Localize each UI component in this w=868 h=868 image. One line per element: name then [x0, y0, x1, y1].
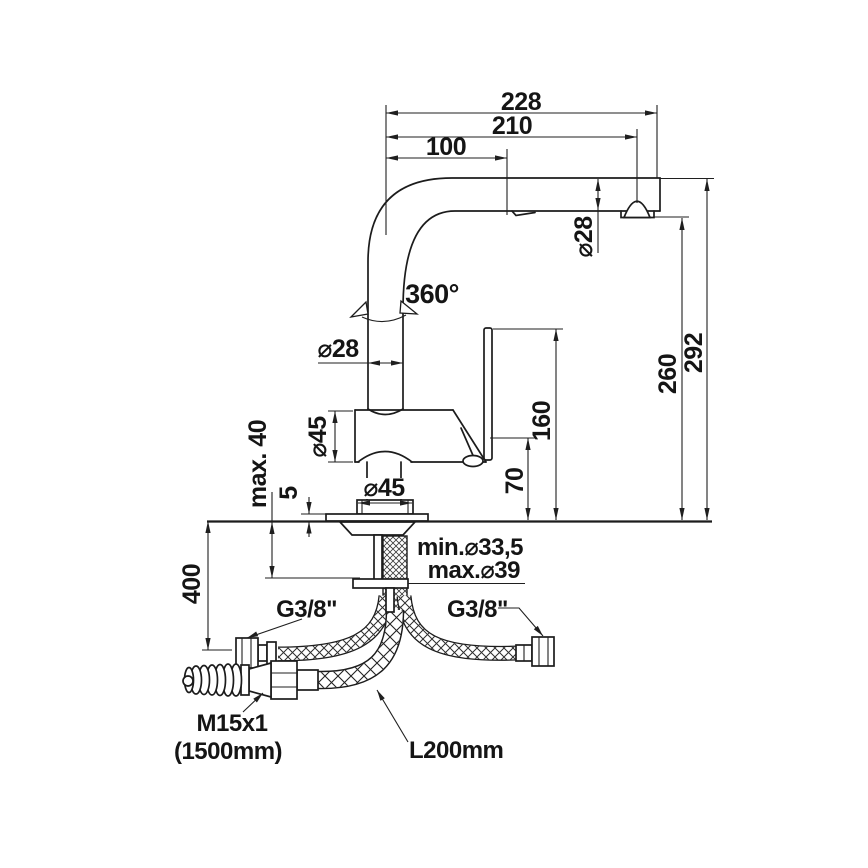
- m15-hex-nut: [271, 661, 297, 699]
- dim-70: 70: [501, 468, 529, 495]
- dim-5: 5: [275, 486, 303, 500]
- cartridge-slant-edge: [453, 410, 486, 462]
- mounting-stud: [374, 535, 382, 580]
- mounting-plate: [353, 579, 408, 588]
- faucet-outline: [326, 178, 660, 521]
- column-body-fillet: [358, 452, 412, 463]
- dim-160: 160: [528, 401, 556, 441]
- dim-400: 400: [178, 564, 206, 604]
- faucet-dimension-drawing: 228 210 100 ⌀28 360° ⌀28 292 260 160 70 …: [0, 0, 868, 868]
- gasket-cone: [340, 522, 415, 535]
- m15-cone: [249, 663, 271, 697]
- handle-lever: [484, 328, 492, 460]
- spring-guide: [183, 664, 242, 696]
- label-m15: M15x1: [197, 710, 268, 737]
- label-g38-left: G3/8": [276, 596, 337, 623]
- escutcheon-plate: [326, 514, 428, 521]
- stud-lower: [386, 588, 394, 612]
- aerator-dome: [624, 201, 650, 217]
- hose-crimp: [297, 670, 318, 690]
- dim-max40: max. 40: [244, 420, 272, 508]
- label-l200mm: L200mm: [409, 737, 503, 764]
- dim-260: 260: [654, 354, 682, 394]
- dim-max-hole: max.⌀39: [428, 557, 521, 584]
- dim-210: 210: [492, 112, 532, 140]
- right-g38-fitting: [516, 637, 554, 666]
- dimensions: 228 210 100 ⌀28 360° ⌀28 292 260 160 70 …: [178, 88, 714, 650]
- dim-phi28-riser: ⌀28: [317, 335, 359, 363]
- dim-100: 100: [426, 133, 466, 161]
- label-1500mm: (1500mm): [174, 738, 282, 765]
- dim-phi45-base: ⌀45: [363, 474, 405, 502]
- spout-inner-contour: [403, 211, 660, 409]
- technical-drawing-page: 228 210 100 ⌀28 360° ⌀28 292 260 160 70 …: [0, 0, 868, 868]
- dim-292: 292: [680, 333, 708, 373]
- lever-base: [463, 456, 483, 467]
- dim-phi45-body: ⌀45: [304, 416, 332, 458]
- label-g38-right: G3/8": [447, 596, 508, 623]
- dim-phi28-spray: ⌀28: [570, 216, 598, 258]
- dim-360: 360°: [405, 279, 459, 309]
